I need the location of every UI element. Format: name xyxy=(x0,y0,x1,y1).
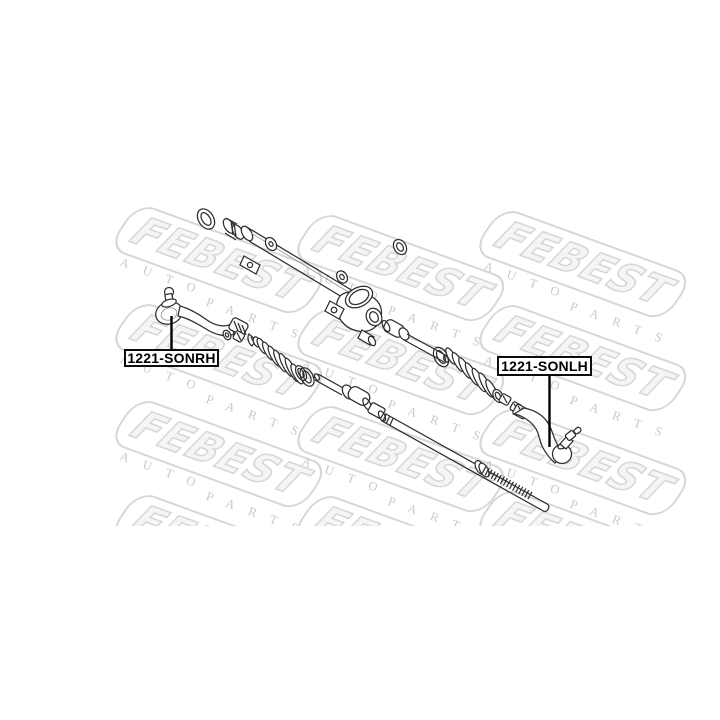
part-number-text: 1221-SONLH xyxy=(501,358,588,374)
exploded-parts-drawing xyxy=(0,0,720,720)
bushing-ring xyxy=(391,237,410,257)
part-number-text: 1221-SONRH xyxy=(127,350,215,366)
inner-tie-rod-left xyxy=(314,373,387,422)
rack-bar xyxy=(381,414,549,512)
catalog-diagram-page: FEBESTAUTOPARTSFEBESTAUTOPARTSFEBESTAUTO… xyxy=(0,0,720,720)
tube-boss-ring xyxy=(334,269,349,285)
snap-ring xyxy=(194,206,218,233)
steering-boot-left xyxy=(252,336,306,386)
part-label-1221-sonlh: 1221-SONLH xyxy=(497,356,592,376)
tie-rod-end-left xyxy=(153,288,249,337)
mount-bracket xyxy=(240,256,260,274)
tie-rod-end-right xyxy=(512,404,582,464)
inner-tie-rod-right xyxy=(381,318,450,363)
part-label-1221-sonrh: 1221-SONRH xyxy=(124,349,219,367)
